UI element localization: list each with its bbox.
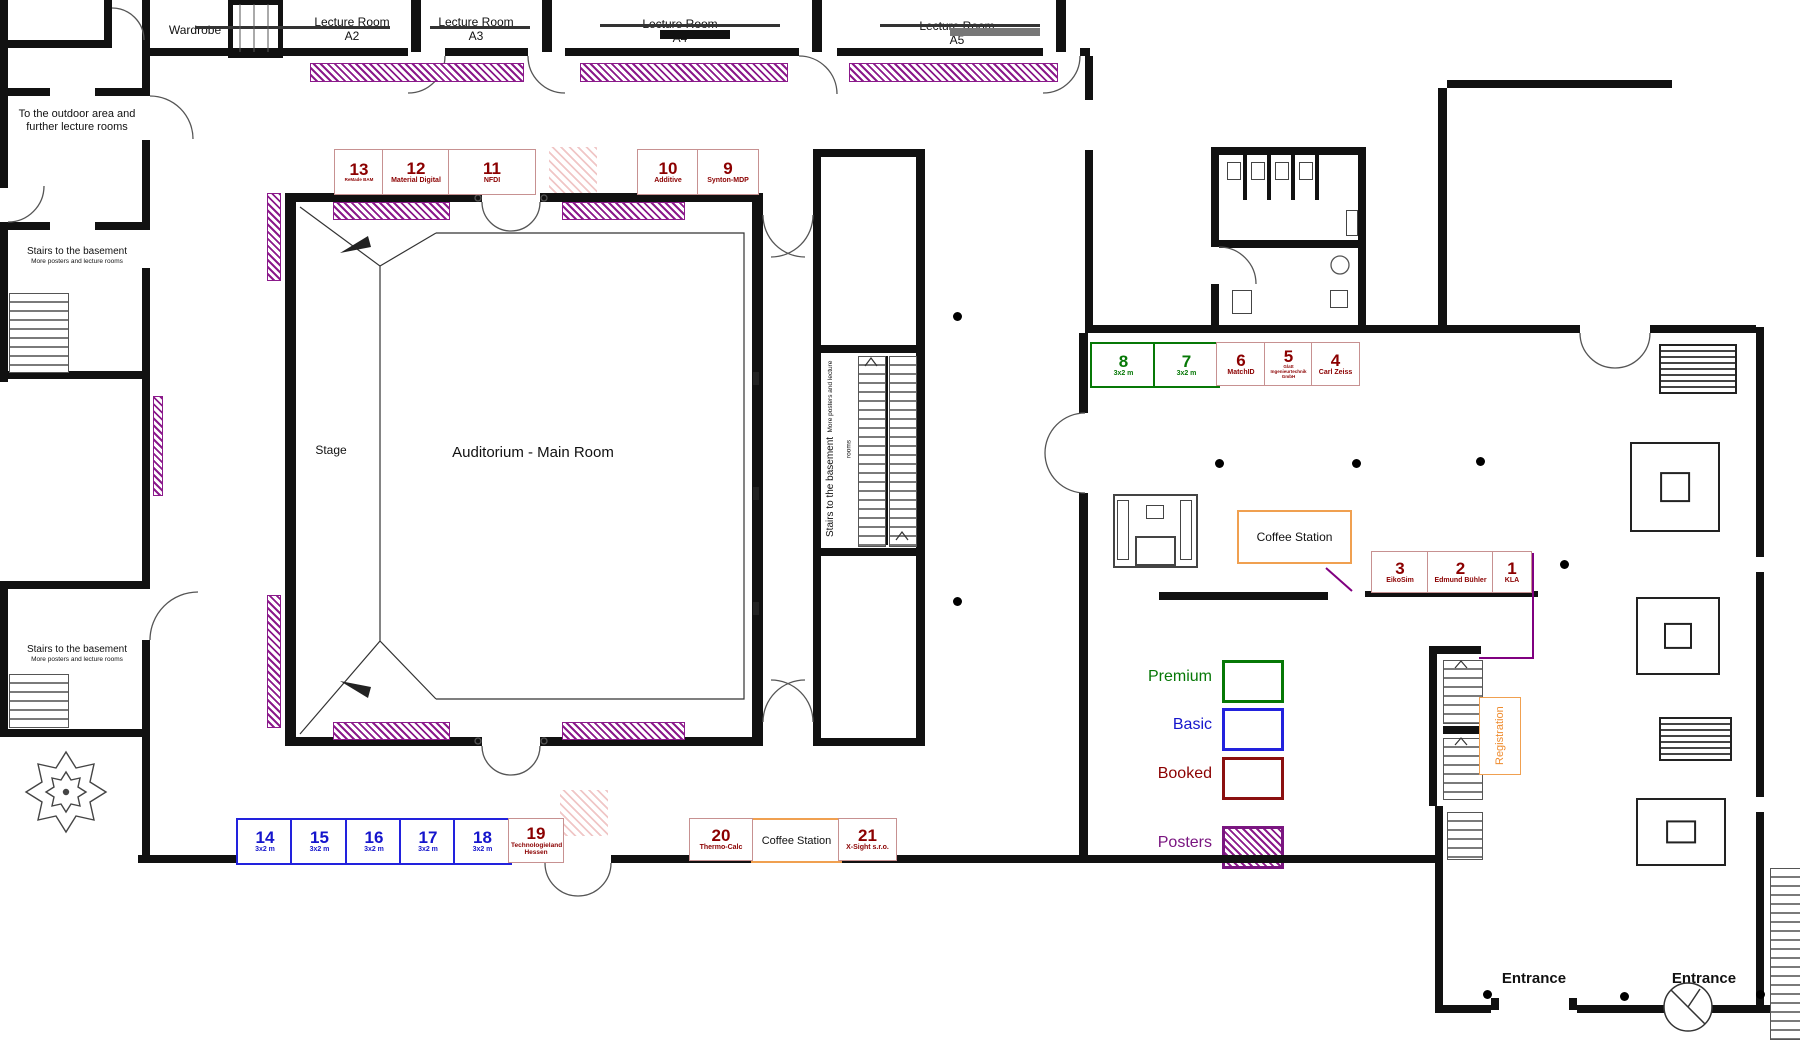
booth-label: KLA — [1505, 577, 1519, 585]
booth-label: 3x2 m — [255, 846, 275, 854]
posters-area — [267, 193, 281, 281]
posters-area — [849, 63, 1058, 82]
booth-19[interactable]: 19 Technologieland Hessen — [508, 818, 564, 863]
coffee-station-label: Coffee Station — [1257, 530, 1333, 544]
booth-9[interactable]: 9 Synton-MDP — [697, 149, 759, 195]
tree-icon — [26, 752, 106, 832]
booth-number: 16 — [365, 829, 384, 846]
revolving-door-icon — [1664, 983, 1712, 1031]
posters-area — [153, 396, 163, 496]
booth-10[interactable]: 10 Additive — [637, 149, 699, 195]
booth-number: 15 — [310, 829, 329, 846]
booth-label: 3x2 m — [1114, 370, 1134, 378]
booth-5[interactable]: 5 Glatt Ingenieurtechnik GmbH — [1264, 342, 1313, 386]
booth-label: Thermo-Calc — [700, 844, 743, 852]
booth-number: 11 — [483, 160, 501, 177]
wardrobe-hangers — [240, 4, 268, 52]
booth-label: Material Digital — [391, 177, 441, 185]
booth-label: Carl Zeiss — [1319, 369, 1352, 377]
booth-7[interactable]: 7 3x2 m — [1153, 342, 1220, 388]
booth-12[interactable]: 12 Material Digital — [382, 149, 450, 195]
auditorium-seating-lines — [300, 207, 1467, 745]
booth-label: Additive — [654, 177, 682, 185]
registration-label: Registration — [1479, 697, 1521, 775]
booth-label: 3x2 m — [473, 846, 493, 854]
booth-label: Technologieland Hessen — [511, 842, 561, 856]
booth-13[interactable]: 13 ReMade BAM — [334, 149, 384, 195]
booth-14[interactable]: 14 3x2 m — [236, 818, 294, 865]
booth-label: NFDI — [484, 177, 500, 185]
posters-area — [562, 202, 685, 220]
booth-label: X-Sight s.r.o. — [846, 844, 889, 852]
posters-area — [310, 63, 524, 82]
booth-number: 10 — [659, 160, 678, 177]
booth-4[interactable]: 4 Carl Zeiss — [1311, 342, 1360, 386]
booth-number: 17 — [419, 829, 438, 846]
booth-label: 3x2 m — [418, 846, 438, 854]
booth-number: 2 — [1456, 560, 1465, 577]
booth-number: 7 — [1182, 353, 1191, 370]
posters-area — [580, 63, 788, 82]
booth-number: 8 — [1119, 353, 1128, 370]
booth-label: Edmund Bühler — [1434, 577, 1486, 585]
booth-label: 3x2 m — [1177, 370, 1197, 378]
booth-15[interactable]: 15 3x2 m — [290, 818, 349, 865]
booth-number: 13 — [350, 161, 369, 178]
booth-number: 4 — [1331, 352, 1340, 369]
floorplan-lines — [0, 0, 1800, 1053]
booth-2[interactable]: 2 Edmund Bühler — [1427, 551, 1494, 593]
booth-label: 3x2 m — [364, 846, 384, 854]
floor-plan: Wardrobe Lecture Room A2 Lecture Room A3… — [0, 0, 1800, 1053]
booth-number: 20 — [712, 827, 731, 844]
posters-area — [333, 722, 450, 740]
posters-area — [562, 722, 685, 740]
booth-number: 1 — [1507, 560, 1516, 577]
booth-label: EikoSim — [1386, 577, 1414, 585]
posters-area — [333, 202, 450, 220]
booth-16[interactable]: 16 3x2 m — [345, 818, 403, 865]
booth-label: Glatt Ingenieurtechnik GmbH — [1269, 365, 1309, 380]
coffee-station-label: Coffee Station — [762, 835, 832, 847]
coffee-station-booths: Coffee Station — [751, 818, 842, 863]
booth-17[interactable]: 17 3x2 m — [399, 818, 457, 865]
booth-label: ReMade BAM — [342, 178, 376, 183]
booth-number: 5 — [1284, 348, 1293, 365]
posters-area — [267, 595, 281, 728]
booth-20[interactable]: 20 Thermo-Calc — [689, 818, 753, 861]
booth-number: 14 — [256, 829, 275, 846]
door-arcs — [8, 8, 1650, 896]
seating-wedges — [340, 236, 759, 698]
registration-text: Registration — [1494, 707, 1506, 766]
booth-number: 19 — [527, 825, 546, 842]
booth-6[interactable]: 6 MatchID — [1216, 342, 1266, 386]
booth-label: MatchID — [1227, 369, 1254, 377]
booth-11[interactable]: 11 NFDI — [448, 149, 536, 195]
booth-3[interactable]: 3 EikoSim — [1371, 551, 1429, 593]
booth-label: 3x2 m — [310, 846, 330, 854]
booth-number: 9 — [723, 160, 732, 177]
booth-8[interactable]: 8 3x2 m — [1090, 342, 1157, 388]
booth-21[interactable]: 21 X-Sight s.r.o. — [838, 818, 897, 861]
booth-number: 12 — [407, 160, 426, 177]
booth-18[interactable]: 18 3x2 m — [453, 818, 512, 865]
booth-number: 21 — [858, 827, 877, 844]
booth-number: 18 — [473, 829, 492, 846]
booth-number: 3 — [1395, 560, 1404, 577]
booth-number: 6 — [1236, 352, 1245, 369]
booth-1[interactable]: 1 KLA — [1492, 551, 1532, 593]
coffee-station-main: Coffee Station — [1237, 510, 1352, 564]
booth-label: Synton-MDP — [707, 177, 749, 185]
